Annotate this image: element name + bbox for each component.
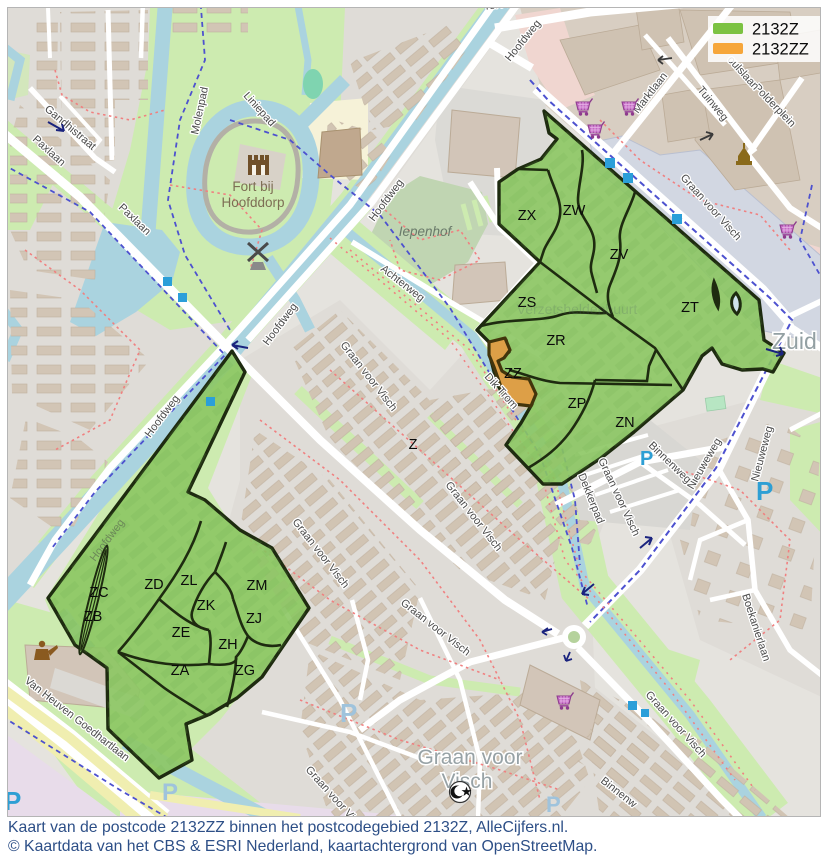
- svg-text:ZC: ZC: [89, 585, 108, 601]
- svg-text:ZP: ZP: [568, 396, 587, 412]
- svg-text:ZE: ZE: [172, 625, 191, 641]
- svg-text:ZZ: ZZ: [504, 366, 522, 382]
- svg-text:2132ZZ: 2132ZZ: [752, 41, 809, 59]
- svg-text:P: P: [756, 476, 773, 506]
- svg-text:P: P: [640, 448, 653, 470]
- svg-text:ZL: ZL: [181, 573, 198, 589]
- svg-text:ZX: ZX: [518, 208, 537, 224]
- svg-text:ZG: ZG: [235, 663, 255, 679]
- svg-text:ZW: ZW: [563, 203, 586, 219]
- svg-text:Zuid: Zuid: [772, 328, 817, 354]
- svg-text:Graan voor: Graan voor: [417, 746, 522, 769]
- svg-text:© Kaartdata van het CBS & ESRI: © Kaartdata van het CBS & ESRI Nederland…: [8, 838, 597, 855]
- svg-text:Fort bij: Fort bij: [232, 179, 273, 194]
- svg-text:ZT: ZT: [681, 300, 699, 316]
- svg-text:ZV: ZV: [610, 247, 629, 263]
- svg-text:Kaart van de postcode 2132ZZ b: Kaart van de postcode 2132ZZ binnen het …: [8, 819, 568, 836]
- svg-text:ZM: ZM: [247, 578, 268, 594]
- svg-text:P: P: [546, 792, 561, 817]
- svg-text:Hoofddorp: Hoofddorp: [221, 195, 284, 210]
- svg-text:P: P: [162, 779, 178, 806]
- svg-text:ZA: ZA: [171, 663, 190, 679]
- svg-text:P: P: [340, 698, 357, 728]
- svg-text:ZJ: ZJ: [246, 611, 262, 627]
- svg-text:ZR: ZR: [546, 333, 565, 349]
- svg-text:Iepenhof: Iepenhof: [399, 224, 453, 239]
- svg-text:ZH: ZH: [218, 637, 237, 653]
- svg-text:ZN: ZN: [615, 415, 634, 431]
- svg-text:ZB: ZB: [84, 609, 103, 625]
- svg-text:2132Z: 2132Z: [752, 21, 799, 39]
- svg-text:ZK: ZK: [197, 598, 216, 614]
- svg-text:ZD: ZD: [144, 577, 163, 593]
- svg-text:Verzetsheldenbuurt: Verzetsheldenbuurt: [517, 301, 638, 317]
- svg-text:Z: Z: [409, 437, 418, 453]
